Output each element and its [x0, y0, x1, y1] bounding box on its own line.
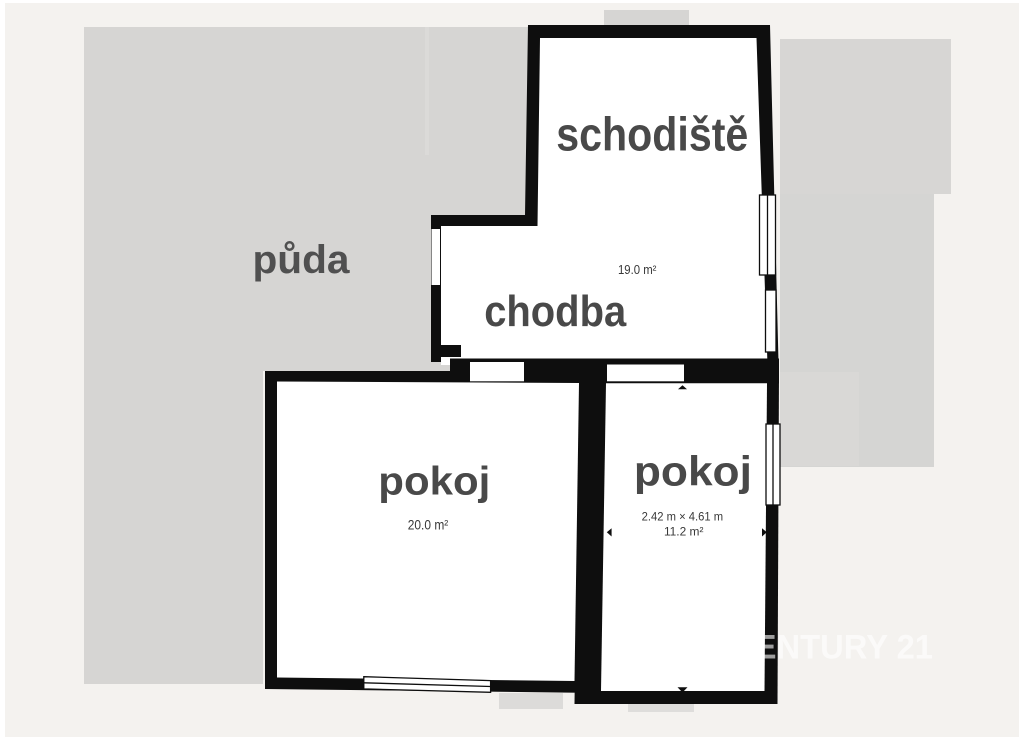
- svg-text:11.2 m²: 11.2 m²: [664, 525, 704, 539]
- svg-text:2.42 m × 4.61 m: 2.42 m × 4.61 m: [642, 510, 724, 524]
- svg-text:schodiště: schodiště: [556, 107, 748, 160]
- svg-text:pokoj: pokoj: [634, 448, 752, 495]
- svg-text:půda: půda: [253, 238, 351, 282]
- svg-text:chodba: chodba: [484, 287, 626, 336]
- svg-text:20.0 m²: 20.0 m²: [408, 516, 449, 532]
- svg-text:pokoj: pokoj: [378, 460, 490, 504]
- svg-text:19.0 m²: 19.0 m²: [618, 262, 657, 277]
- svg-text:CENTURY 21: CENTURY 21: [731, 629, 933, 667]
